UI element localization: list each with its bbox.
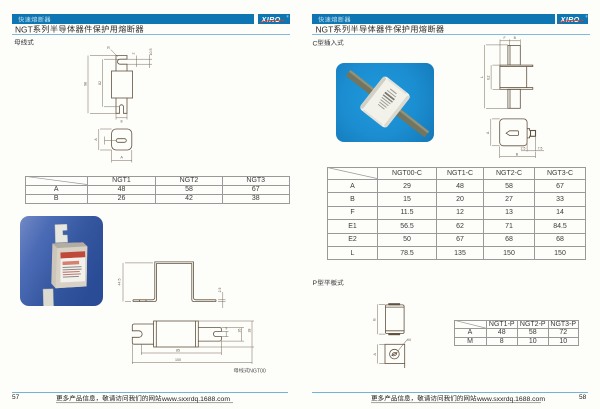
svg-text:®: ® xyxy=(287,15,290,19)
svg-text:XIRO: XIRO xyxy=(560,15,580,24)
svg-text:www.sxxrdq.1688.com: www.sxxrdq.1688.com xyxy=(161,396,230,403)
svg-text:A: A xyxy=(486,131,490,134)
svg-text:8: 8 xyxy=(121,119,123,123)
svg-text:10.5: 10.5 xyxy=(149,49,153,56)
svg-text:®: ® xyxy=(586,15,589,19)
svg-text:B: B xyxy=(373,318,377,321)
svg-text:7.5: 7.5 xyxy=(538,147,543,151)
svg-text:R: R xyxy=(107,46,110,50)
svg-text:XIRO: XIRO xyxy=(261,15,281,24)
svg-text:F: F xyxy=(503,36,505,40)
svg-text:NGT00: NGT00 xyxy=(249,368,266,374)
svg-text:A: A xyxy=(94,138,98,141)
svg-text:NGT: NGT xyxy=(316,24,334,34)
svg-text:L: L xyxy=(480,76,484,78)
svg-text:A: A xyxy=(373,353,377,356)
svg-text:C: C xyxy=(313,40,318,47)
svg-text:NGT: NGT xyxy=(15,24,33,34)
svg-text:2.5: 2.5 xyxy=(521,147,526,151)
svg-text:26: 26 xyxy=(238,329,242,333)
svg-text:2: 2 xyxy=(132,53,136,55)
svg-text:E2: E2 xyxy=(486,75,490,79)
svg-text:M: M xyxy=(407,337,410,342)
svg-text:85: 85 xyxy=(176,349,180,353)
svg-text:B: B xyxy=(516,153,519,157)
svg-text:100: 100 xyxy=(175,358,181,362)
svg-text:2.9: 2.9 xyxy=(218,288,222,293)
svg-text:44.5: 44.5 xyxy=(117,279,121,286)
svg-text:B: B xyxy=(514,36,517,40)
svg-text:82: 82 xyxy=(98,81,102,85)
svg-text:www.sxxrdq.1688.com: www.sxxrdq.1688.com xyxy=(476,396,545,403)
svg-text:A: A xyxy=(120,156,123,160)
svg-text:28: 28 xyxy=(248,329,252,333)
svg-text:P: P xyxy=(313,280,318,287)
svg-text:9: 9 xyxy=(225,326,227,330)
svg-text:98: 98 xyxy=(83,82,87,86)
